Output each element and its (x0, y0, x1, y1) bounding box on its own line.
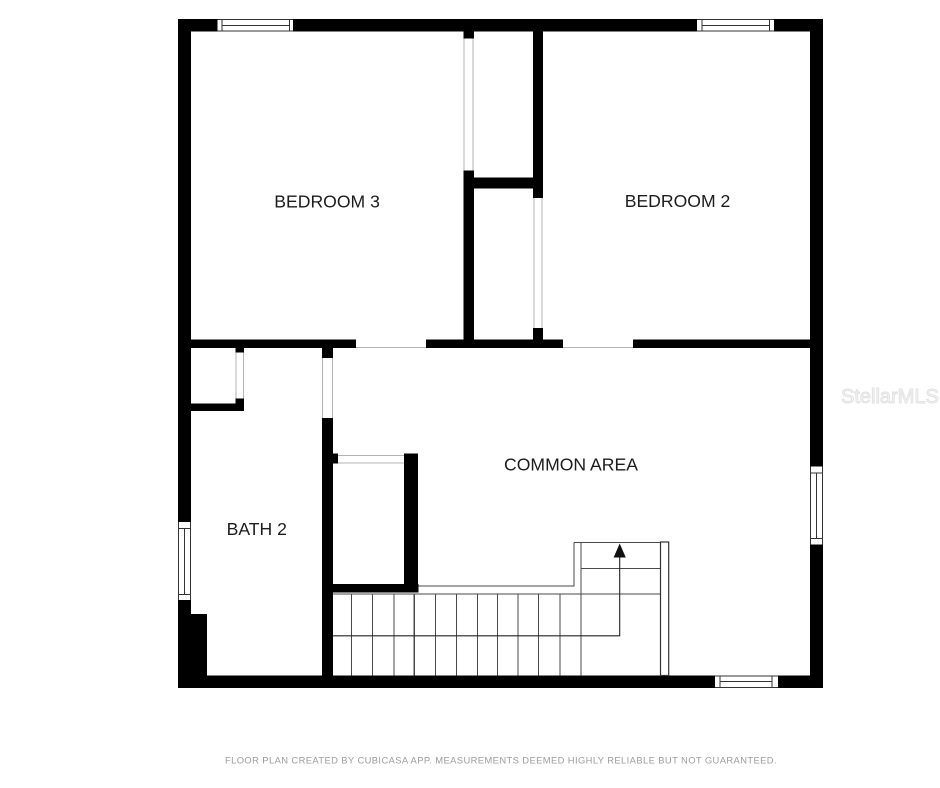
svg-text:BEDROOM 3: BEDROOM 3 (274, 191, 380, 211)
svg-text:COMMON AREA: COMMON AREA (504, 455, 638, 475)
svg-text:BATH 2: BATH 2 (227, 519, 287, 539)
svg-text:BEDROOM 2: BEDROOM 2 (625, 191, 731, 211)
svg-text:FLOOR PLAN CREATED BY CUBICASA: FLOOR PLAN CREATED BY CUBICASA APP. MEAS… (225, 755, 777, 766)
svg-text:StellarMLS: StellarMLS (841, 386, 939, 408)
